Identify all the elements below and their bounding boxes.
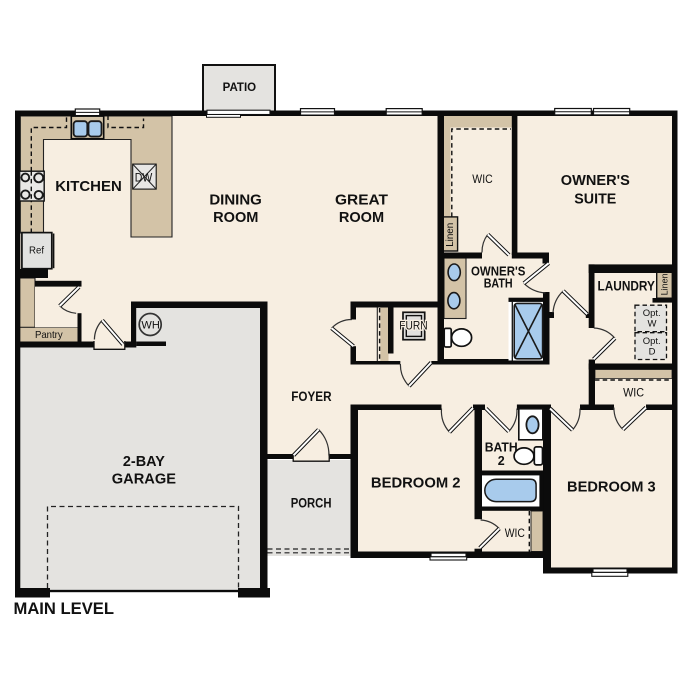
svg-text:W: W [648, 319, 657, 330]
svg-text:Ref: Ref [29, 244, 44, 256]
svg-text:Pantry: Pantry [35, 329, 63, 341]
svg-text:Linen: Linen [660, 273, 671, 295]
svg-text:PATIO: PATIO [223, 80, 257, 94]
svg-text:2: 2 [498, 454, 505, 468]
svg-text:GARAGE: GARAGE [112, 472, 177, 488]
svg-text:WIC: WIC [623, 387, 644, 399]
svg-text:BATH: BATH [485, 441, 518, 455]
svg-text:BATH: BATH [484, 276, 513, 290]
svg-text:GREAT: GREAT [335, 192, 388, 209]
svg-text:LAUNDRY: LAUNDRY [598, 277, 656, 293]
svg-text:MAIN LEVEL: MAIN LEVEL [14, 600, 115, 618]
svg-text:WH: WH [141, 320, 159, 332]
svg-text:DW: DW [135, 173, 153, 185]
svg-text:WIC: WIC [505, 528, 525, 540]
svg-text:Linen: Linen [445, 223, 456, 247]
svg-text:FURN: FURN [399, 318, 427, 332]
svg-text:DINING: DINING [209, 192, 262, 209]
svg-text:D: D [649, 347, 656, 358]
svg-text:ROOM: ROOM [213, 209, 258, 226]
svg-text:Opt.: Opt. [643, 336, 661, 347]
svg-text:FOYER: FOYER [291, 389, 332, 404]
svg-text:WIC: WIC [472, 174, 492, 186]
svg-text:2-BAY: 2-BAY [123, 454, 165, 470]
svg-text:BEDROOM 2: BEDROOM 2 [371, 474, 461, 491]
svg-text:BEDROOM 3: BEDROOM 3 [567, 478, 656, 495]
svg-text:SUITE: SUITE [574, 191, 616, 207]
svg-text:Opt.: Opt. [643, 308, 661, 319]
svg-text:ROOM: ROOM [339, 209, 384, 226]
svg-text:KITCHEN: KITCHEN [55, 178, 122, 195]
svg-text:PORCH: PORCH [291, 495, 332, 510]
svg-text:OWNER'S: OWNER'S [561, 173, 630, 189]
